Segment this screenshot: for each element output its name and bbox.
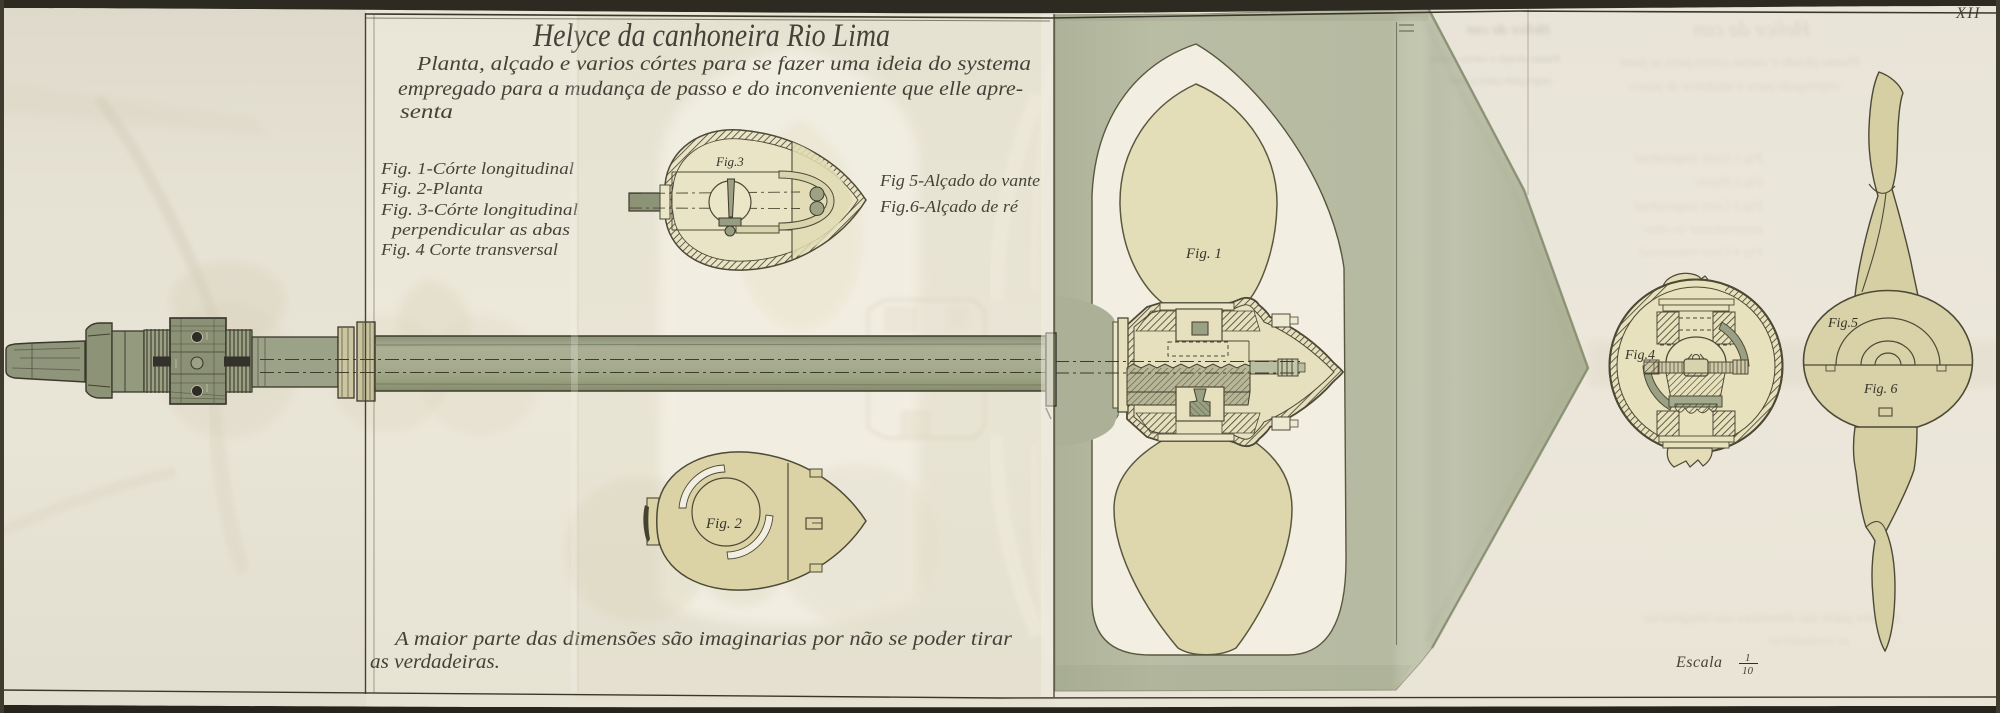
svg-text:as verdadeiras: as verdadeiras <box>1767 634 1850 649</box>
svg-text:Helyce da canhoneira Rio Lima: Helyce da canhoneira Rio Lima <box>532 18 890 54</box>
svg-text:Fig. 3-Córte longitudinal: Fig. 3-Córte longitudinal <box>380 200 578 219</box>
svg-text:Fig 1 Corte longitudinal: Fig 1 Corte longitudinal <box>1634 150 1763 165</box>
svg-text:Fig.5: Fig.5 <box>1827 316 1858 331</box>
svg-text:Helice da can: Helice da can <box>1693 17 1811 41</box>
svg-text:A maior parte das dimensoes sa: A maior parte das dimensoes sao imaginar… <box>1642 611 1901 626</box>
svg-text:Fig 3 Corte longitudinal: Fig 3 Corte longitudinal <box>1634 198 1763 213</box>
svg-text:Fig. 2-Planta: Fig. 2-Planta <box>380 179 483 198</box>
svg-text:Fig. 6: Fig. 6 <box>1863 382 1897 397</box>
svg-text:Planta alcado e varios cortes: Planta alcado e varios cortes <box>1430 53 1561 65</box>
svg-text:Fig 4 Corte transversal: Fig 4 Corte transversal <box>1639 244 1763 259</box>
svg-text:Fig.4: Fig.4 <box>1624 348 1655 363</box>
svg-text:A maior parte das dimensões sã: A maior parte das dimensões são imaginar… <box>393 628 1013 650</box>
svg-text:Fig. 4 Corte transversal: Fig. 4 Corte transversal <box>380 240 558 259</box>
svg-text:Fig. 2: Fig. 2 <box>705 516 742 532</box>
svg-text:Planta alcado e varios cortes: Planta alcado e varios cortes para se fa… <box>1618 55 1861 70</box>
svg-text:Fig 2 Planta: Fig 2 Planta <box>1696 174 1763 189</box>
svg-text:Fig. 1: Fig. 1 <box>1185 246 1222 262</box>
svg-text:Planta, alçado e varios córtes: Planta, alçado e varios córtes para se f… <box>416 54 1031 75</box>
svg-text:1: 1 <box>1745 652 1751 664</box>
svg-text:Fig. 1-Córte longitudinal: Fig. 1-Córte longitudinal <box>380 159 574 178</box>
svg-text:empregado para a mudanca de pa: empregado para a mudanca de passo <box>1630 79 1840 94</box>
svg-text:Fig 5-Alçado do vante: Fig 5-Alçado do vante <box>879 171 1041 190</box>
svg-text:10: 10 <box>1742 665 1754 677</box>
svg-text:empregado para a mudança de pa: empregado para a mudança de passo e do i… <box>398 79 1023 100</box>
svg-text:as verdadeiras.: as verdadeiras. <box>370 651 500 673</box>
svg-text:Fig.6-Alçado de ré: Fig.6-Alçado de ré <box>879 197 1020 216</box>
svg-text:Helice da can: Helice da can <box>1467 22 1551 38</box>
svg-text:empregado para a mud: empregado para a mud <box>1449 75 1552 87</box>
svg-text:Fig.3: Fig.3 <box>715 154 744 169</box>
svg-text:perpendicular as abas: perpendicular as abas <box>391 220 571 239</box>
svg-text:Escala: Escala <box>1675 654 1723 671</box>
svg-text:senta: senta <box>400 102 453 123</box>
svg-text:perpendicular as abas: perpendicular as abas <box>1646 221 1763 236</box>
